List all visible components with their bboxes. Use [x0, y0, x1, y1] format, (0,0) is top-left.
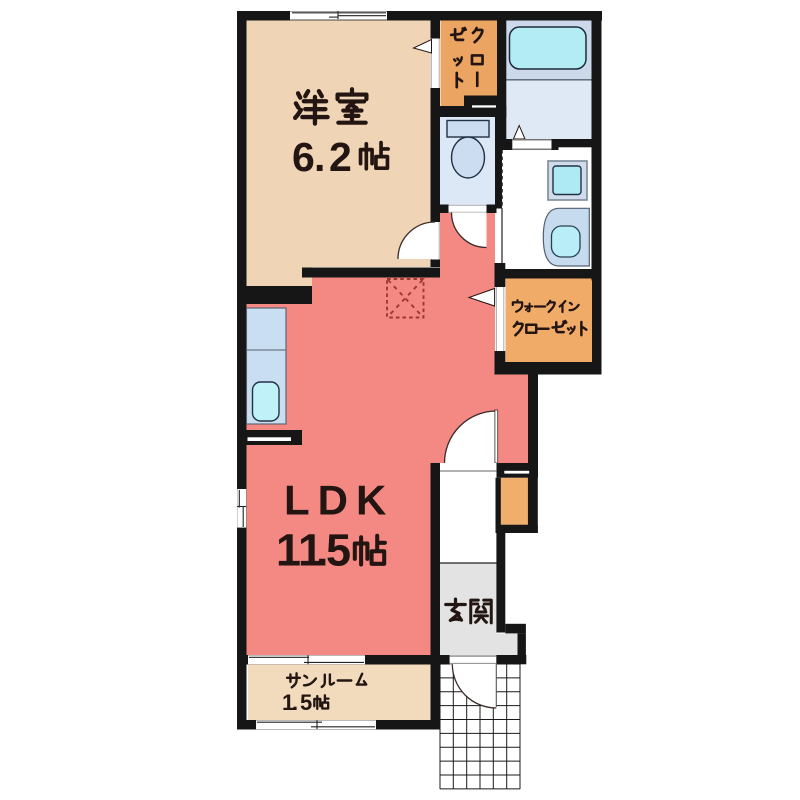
- svg-text:LDK: LDK: [284, 477, 394, 524]
- svg-text:6.2: 6.2: [292, 134, 352, 180]
- svg-text:1.5: 1.5: [282, 690, 312, 715]
- svg-text:11.5: 11.5: [276, 525, 351, 576]
